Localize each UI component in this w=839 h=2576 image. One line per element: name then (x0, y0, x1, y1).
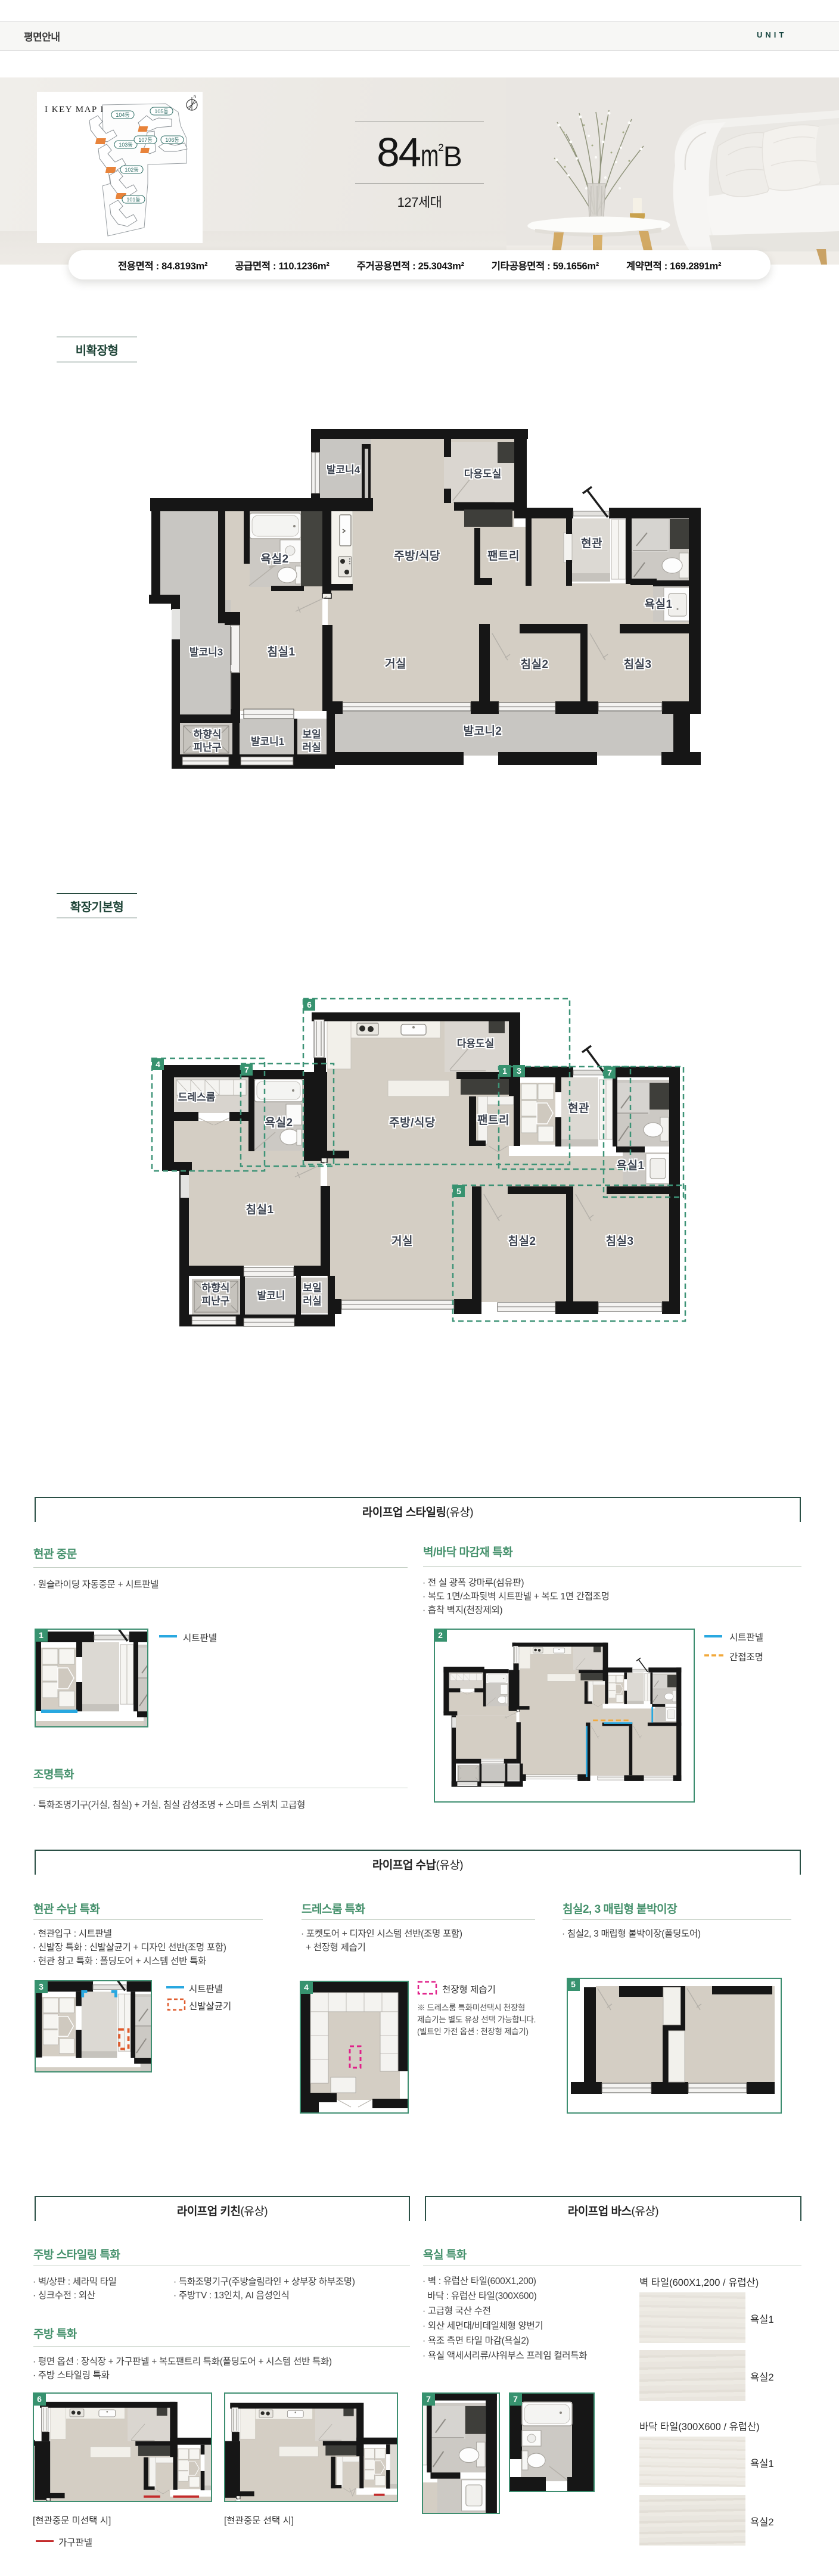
svg-text:욕실2: 욕실2 (260, 552, 288, 565)
svg-text:하향식: 하향식 (194, 728, 222, 740)
svg-text:101동: 101동 (126, 197, 140, 203)
svg-text:주방/식당: 주방/식당 (389, 1116, 436, 1129)
svg-text:7: 7 (244, 1065, 249, 1074)
svg-text:현관: 현관 (568, 1102, 589, 1115)
svg-text:발코니2: 발코니2 (463, 725, 502, 738)
svg-text:7: 7 (607, 1068, 612, 1077)
svg-text:발코니3: 발코니3 (189, 647, 223, 658)
svg-text:6: 6 (37, 2394, 42, 2404)
svg-text:2: 2 (438, 1630, 443, 1640)
svg-text:7: 7 (426, 2394, 431, 2404)
svg-text:3: 3 (39, 1982, 43, 1991)
svg-text:102동: 102동 (125, 167, 138, 173)
svg-text:드레스룸: 드레스룸 (178, 1092, 216, 1103)
svg-text:침실3: 침실3 (605, 1235, 633, 1248)
svg-text:N: N (194, 95, 196, 99)
svg-text:현관: 현관 (581, 537, 602, 550)
svg-text:피난구: 피난구 (194, 742, 222, 753)
svg-text:107동: 107동 (138, 137, 152, 143)
svg-text:팬트리: 팬트리 (477, 1114, 509, 1127)
svg-text:주방/식당: 주방/식당 (394, 549, 440, 563)
svg-text:침실1: 침실1 (246, 1203, 274, 1216)
svg-text:103동: 103동 (119, 142, 132, 148)
svg-text:3: 3 (517, 1066, 521, 1076)
svg-text:발코니1: 발코니1 (251, 736, 284, 747)
svg-text:5: 5 (571, 1980, 576, 1989)
svg-text:I KEY MAP I: I KEY MAP I (45, 105, 104, 114)
svg-text:1: 1 (39, 1630, 43, 1640)
svg-text:피난구: 피난구 (202, 1295, 230, 1307)
svg-text:팬트리: 팬트리 (487, 549, 520, 563)
svg-text:발코니: 발코니 (257, 1290, 285, 1301)
svg-text:욕실2: 욕실2 (265, 1116, 293, 1129)
svg-text:106동: 106동 (165, 137, 179, 143)
svg-text:침실2: 침실2 (508, 1235, 536, 1248)
svg-text:보일: 보일 (303, 1282, 321, 1294)
svg-text:다용도실: 다용도실 (457, 1038, 495, 1049)
svg-text:침실1: 침실1 (267, 645, 295, 658)
svg-text:104동: 104동 (116, 112, 129, 118)
svg-text:발코니4: 발코니4 (327, 464, 361, 476)
svg-text:거실: 거실 (385, 657, 406, 670)
svg-text:보일: 보일 (302, 729, 321, 740)
svg-text:5: 5 (456, 1186, 461, 1196)
svg-text:다용도실: 다용도실 (464, 468, 502, 480)
svg-text:7: 7 (513, 2394, 518, 2404)
svg-text:욕실1: 욕실1 (644, 598, 672, 611)
svg-text:욕실1: 욕실1 (616, 1159, 644, 1172)
svg-text:1: 1 (502, 1066, 507, 1076)
svg-text:러실: 러실 (303, 1295, 321, 1307)
svg-text:4: 4 (304, 1983, 309, 1992)
svg-text:6: 6 (307, 1000, 312, 1009)
svg-text:침실3: 침실3 (623, 658, 651, 671)
svg-text:4: 4 (156, 1059, 160, 1069)
svg-text:침실2: 침실2 (520, 658, 548, 671)
svg-text:105동: 105동 (154, 108, 168, 114)
svg-text:러실: 러실 (302, 742, 321, 753)
svg-text:거실: 거실 (391, 1235, 413, 1248)
svg-text:하향식: 하향식 (202, 1282, 230, 1294)
